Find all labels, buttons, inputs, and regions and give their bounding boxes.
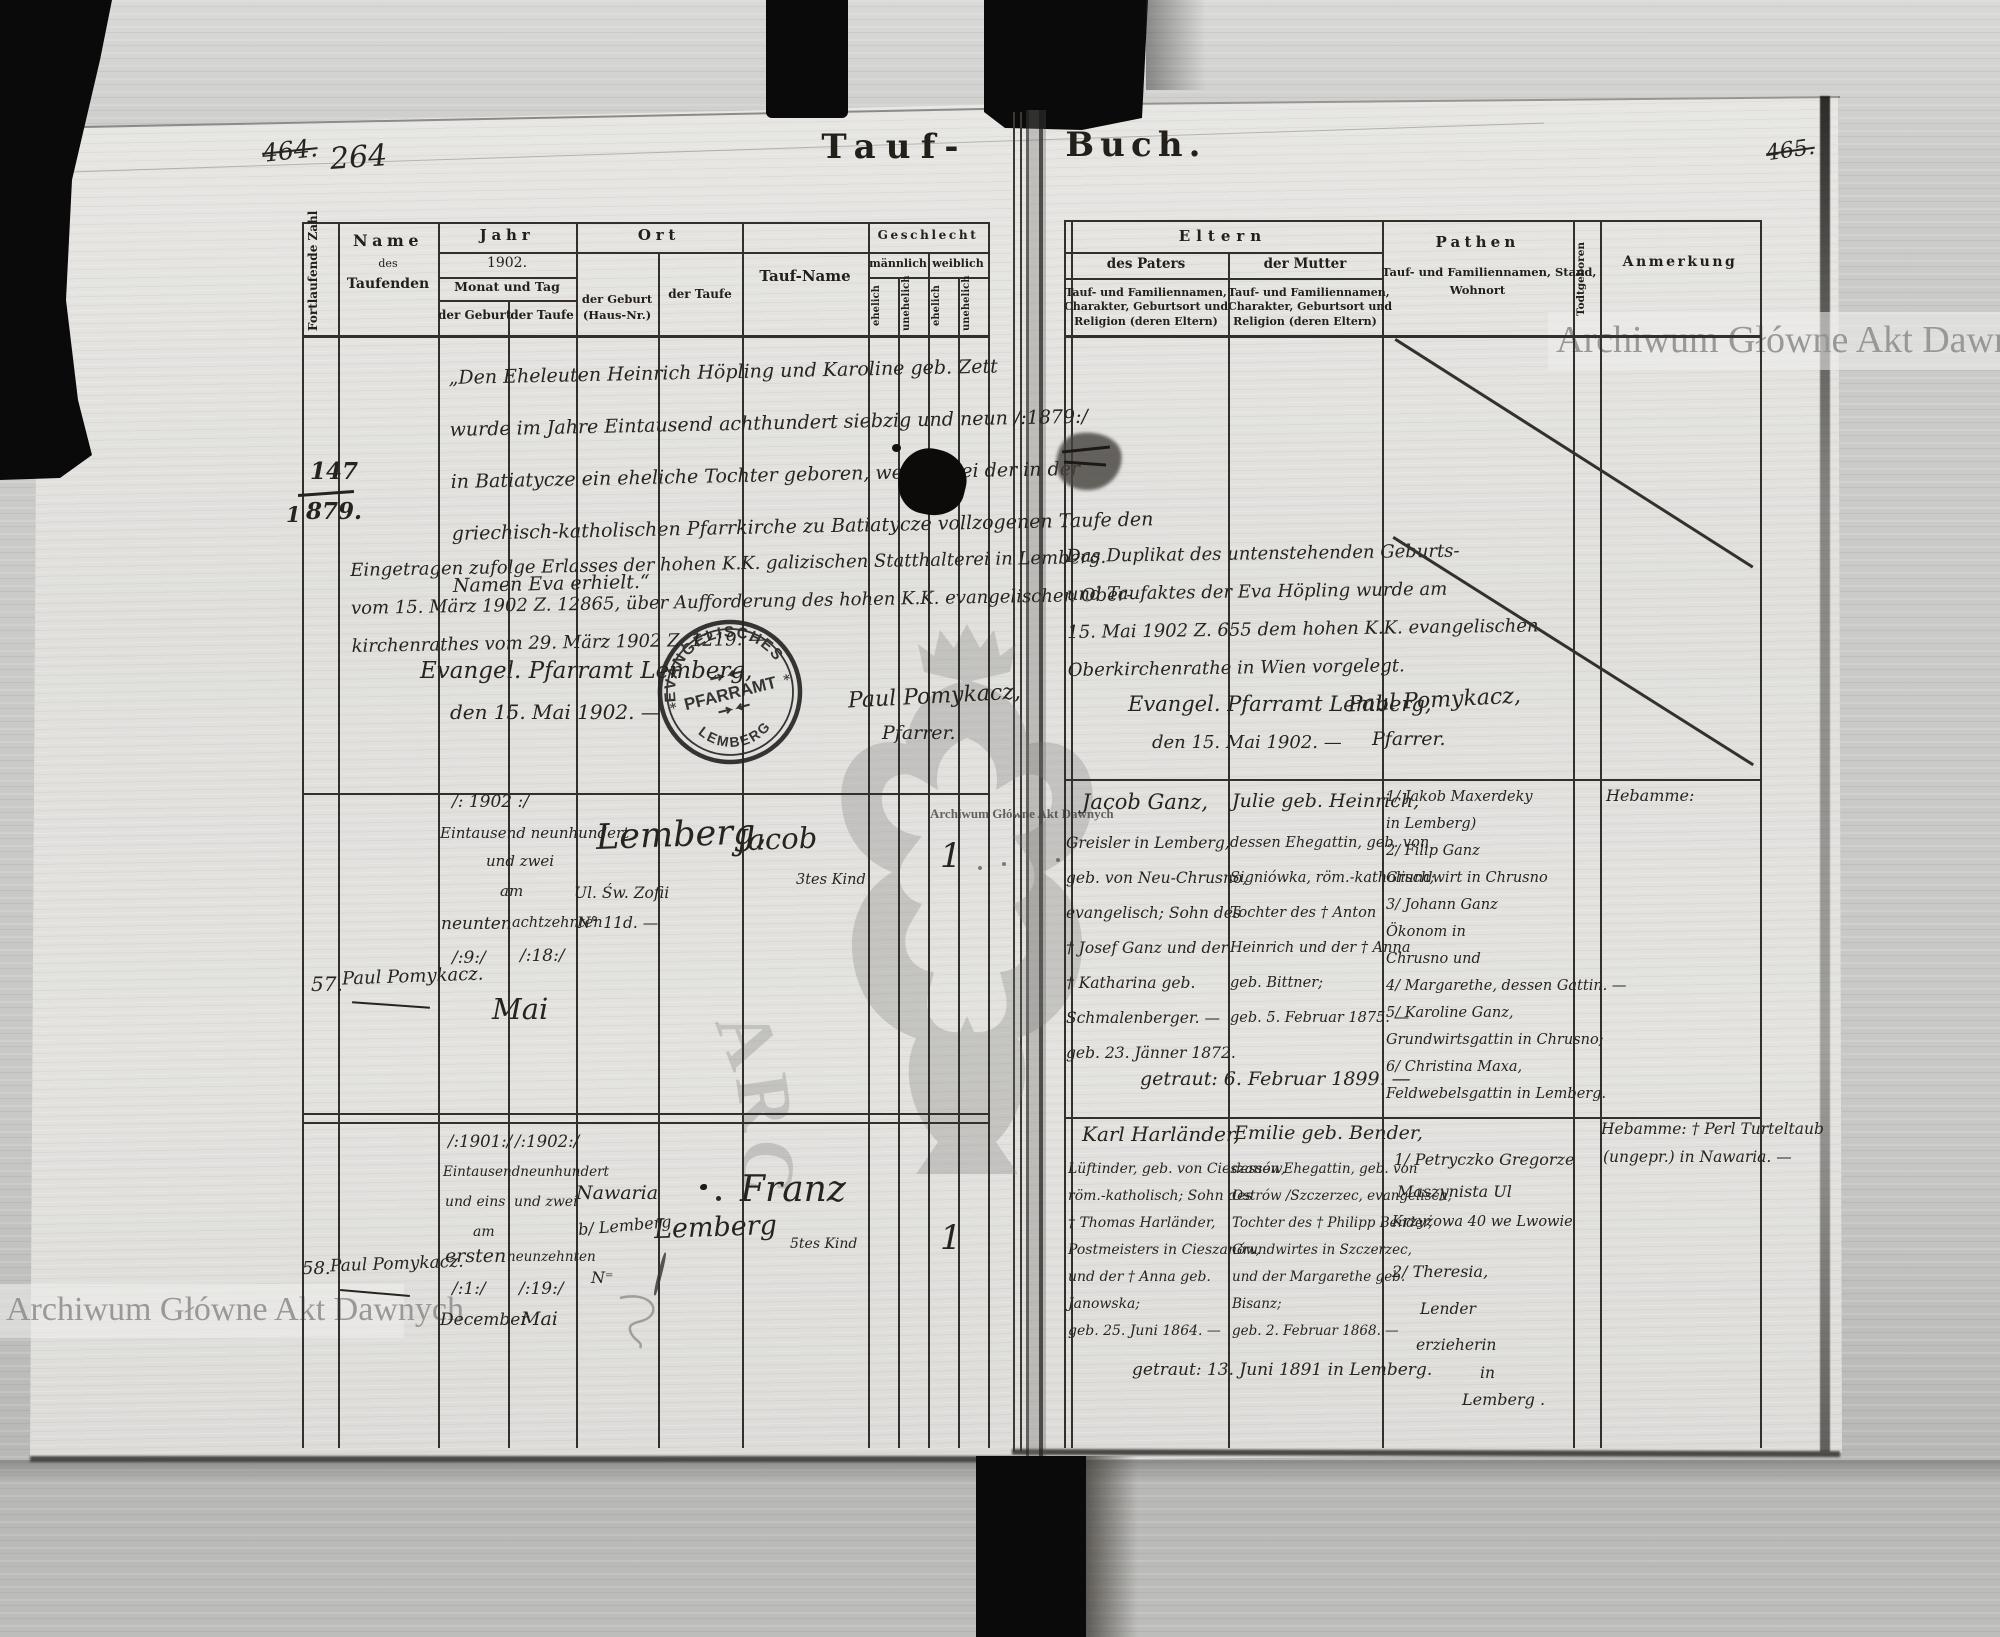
entry58-godparent-2: 2/ Theresia, (1392, 1262, 1488, 1281)
entry58-ort-geburt: Nawaria (576, 1182, 658, 1205)
black-top-strip-shadow (1146, 0, 1206, 90)
header-jahr: Jahr (438, 227, 576, 244)
entry58-day-taufe: /:19:/ (519, 1279, 564, 1299)
black-top-strip-2 (984, 0, 1148, 133)
header-maennlich: männlich (868, 258, 928, 271)
entry58-godparent-2c: erzieherin (1416, 1336, 1496, 1355)
header-unehelich-m: unehelich (901, 281, 925, 331)
entry58-anmerkung-2: (ungepr.) in Nawaria. — (1603, 1148, 1792, 1167)
entry58-godparent-2d: in (1480, 1364, 1495, 1383)
entry58-godparent-1c: Krzyżowa 40 we Lwowie (1392, 1214, 1573, 1231)
entry58-number: 58. (302, 1258, 331, 1280)
entry57-father-name: Jacob Ganz, (1082, 790, 1208, 815)
header-ehelich-w: ehelich (931, 281, 955, 331)
ink-blot-speck (892, 444, 901, 452)
entry57-number: 57. (311, 972, 343, 996)
entry58-am: am (473, 1224, 495, 1241)
entry58-month-geburt: December (440, 1310, 528, 1330)
scanned-register-spread: ARCHIWUM GŁÓWNE AKT DAWNYCH Archiwum Głó… (0, 0, 2000, 1637)
header-taufname: Tauf-Name (742, 268, 868, 285)
entry58-day-taufe-word: neunzehnten (507, 1249, 596, 1265)
entry57-geschlecht-mark: 1 (940, 836, 962, 877)
entry1-right-closing-line2: den 15. Mai 1902. — (1152, 732, 1342, 754)
grid-line (1064, 779, 1760, 781)
grid-line (302, 222, 990, 224)
header-eltern: Eltern (1064, 228, 1382, 245)
entry58-anmerkung-1: Hebamme: † Perl Turteltaub (1601, 1120, 1824, 1139)
entry57-father-details: Greisler in Lemberg,geb. von Neu-Chrusno… (1066, 826, 1247, 1071)
grid-line (1064, 1117, 1760, 1119)
grid-line (1064, 278, 1382, 280)
entry58-father-name: Karl Harländer, (1082, 1122, 1240, 1146)
entry57-ort-street-2: N° 11d. — (577, 914, 658, 933)
header-name-taufenden: Taufenden (338, 276, 438, 292)
entry57-year: /: 1902 :/ (452, 792, 529, 812)
header-des-paters: des Paters (1064, 257, 1228, 273)
header-ort-geburt: der Geburt(Haus-Nr.) (576, 292, 658, 323)
entry57-anmerkung: Hebamme: (1606, 786, 1694, 805)
grid-line (438, 300, 576, 302)
page-right-outer-edge (1820, 96, 1830, 1452)
entry58-godparent-1: 1/ Petryczko Gregorze (1394, 1150, 1574, 1169)
entry57-godparents: 1/ Jakob Maxerdekyin Lemberg)2/ Filip Ga… (1386, 784, 1626, 1108)
entry57-ort-street: Ul. Św. Zofii (574, 884, 669, 903)
entry58-ort-taufe: Lemberg (653, 1210, 777, 1247)
entry57-am: am (500, 882, 523, 900)
entry1-duplicate-note: Das Duplikat des untenstehenden Geburts-… (1066, 531, 1539, 690)
entry58-month-taufe: Mai (521, 1308, 558, 1331)
grid-line (1064, 335, 1760, 338)
grid-line (1760, 220, 1762, 1448)
header-der-taufe: der Taufe (508, 309, 576, 323)
entry57-day-geburt-word: neunten (441, 914, 512, 934)
entry57-month: Mai (492, 992, 548, 1027)
grid-line (302, 793, 990, 795)
header-monat-und-tag: Monat und Tag (438, 280, 576, 294)
entry58-godparent-2e: Lemberg . (1462, 1390, 1545, 1409)
gutter-bottom-penumbra (1086, 1456, 1138, 1637)
header-geschlecht: Geschlecht (868, 229, 988, 243)
entry58-kind: 5tes Kind (790, 1236, 857, 1253)
entry58-day-geburt-word: ersten (445, 1245, 506, 1268)
entry58-year-words-taufe: und zwei (514, 1194, 578, 1211)
entry58-godparent-1b: Maszynista Ul (1397, 1182, 1512, 1201)
svg-text:ARCHIWUM GŁÓWNE AKT DAWNYCH: ARCHIWUM GŁÓWNE AKT DAWNYCH (640, 797, 811, 1200)
entry1-closing-line2: den 15. Mai 1902. — (450, 700, 661, 724)
black-top-strip-1 (766, 0, 848, 118)
entry58-day-geburt: /:1:/ (452, 1279, 486, 1299)
grid-line (438, 252, 990, 254)
grid-line (302, 1122, 990, 1124)
header-ort: Ort (576, 227, 742, 244)
page-number-old-left: 464. (261, 133, 320, 169)
grid-line (302, 1113, 990, 1115)
entry58-year-taufe: /:1902:/ (515, 1132, 579, 1152)
svg-text:PFARRAMT: PFARRAMT (682, 673, 779, 714)
page-number-new-left: 264 (329, 138, 389, 178)
header-jahr-1902: 1902. (438, 255, 576, 271)
title-left: Tauf- (790, 128, 1000, 167)
header-der-geburt: der Geburt (438, 309, 508, 323)
entry1-signature-title: Pfarrer. (882, 722, 956, 745)
header-weiblich: weiblich (928, 258, 988, 271)
header-der-mutter: der Mutter (1228, 257, 1382, 273)
header-fortlaufende-zahl: Fortlaufende Zahl (307, 227, 333, 331)
watermark-top-right-text: Archiwum Główne Akt Dawnych (1556, 318, 2000, 362)
header-name-des: des (338, 258, 438, 271)
header-unehelich-w: unehelich (961, 281, 985, 331)
entry57-kind: 3tes Kind (796, 872, 866, 889)
entry58-mother-name: Emilie geb. Bender, (1234, 1122, 1423, 1145)
entry58-year-geburt: /:1901:/ (448, 1132, 512, 1152)
header-paters-desc: Tauf- und Familiennamen,Charakter, Gebur… (1064, 286, 1228, 329)
header-ehelich-m: ehelich (871, 281, 895, 331)
entry57-day-taufe: /:18:/ (520, 946, 565, 966)
ink-speck (700, 1184, 707, 1190)
entry1-number-top: 147 (310, 458, 358, 486)
grid-line (1064, 252, 1382, 254)
entry1-right-signature-title: Pfarrer. (1372, 728, 1446, 751)
entry58-year-words: Eintausendneunhundert (443, 1164, 609, 1180)
header-todtgeboren: Todtgeboren (1575, 226, 1599, 332)
title-right: Buch. (1056, 126, 1216, 165)
grid-line (302, 335, 990, 338)
header-pathen-desc: Tauf- und Familiennamen, Stand,Wohnort (1382, 264, 1573, 300)
entry1-number-bottom: 879. (306, 498, 362, 526)
ink-dot (1056, 858, 1060, 862)
entry57-year-words-2: und zwei (486, 852, 554, 870)
entry58-geschlecht-mark: 1 (940, 1218, 962, 1259)
header-name: Name (338, 232, 438, 250)
pencil-squiggle (614, 1290, 660, 1350)
entry58-taufname: Franz (740, 1168, 846, 1211)
ink-dot (1002, 862, 1006, 866)
header-mutter-desc: Tauf- und Familiennamen,Charakter, Gebur… (1228, 286, 1382, 329)
entry1-number-side: 1 (286, 502, 301, 527)
entry58-marriage-note: getraut: 13. Juni 1891 in Lemberg. (1132, 1360, 1432, 1380)
watermark-bottom-left-text: Archiwum Główne Akt Dawnych (6, 1291, 464, 1329)
entry58-godparent-2b: Lender (1420, 1300, 1476, 1319)
entry57-day-geburt: /:9:/ (452, 948, 486, 968)
grid-line (1064, 220, 1760, 222)
ink-speck (716, 1196, 721, 1201)
ink-dot (978, 866, 982, 870)
entry58-ort-geburt-3: N⁼ (591, 1268, 613, 1287)
header-anmerkung: Anmerkung (1600, 254, 1760, 270)
entry57-taufname: Jacob (735, 821, 817, 859)
black-gutter-bottom (976, 1456, 1086, 1637)
entry57-marriage-note: getraut: 6. Februar 1899. — (1140, 1068, 1411, 1091)
header-pathen: Pathen (1382, 234, 1573, 251)
entry58-year-words-geburt: und eins (445, 1194, 505, 1211)
header-ort-taufe: der Taufe (658, 288, 742, 302)
